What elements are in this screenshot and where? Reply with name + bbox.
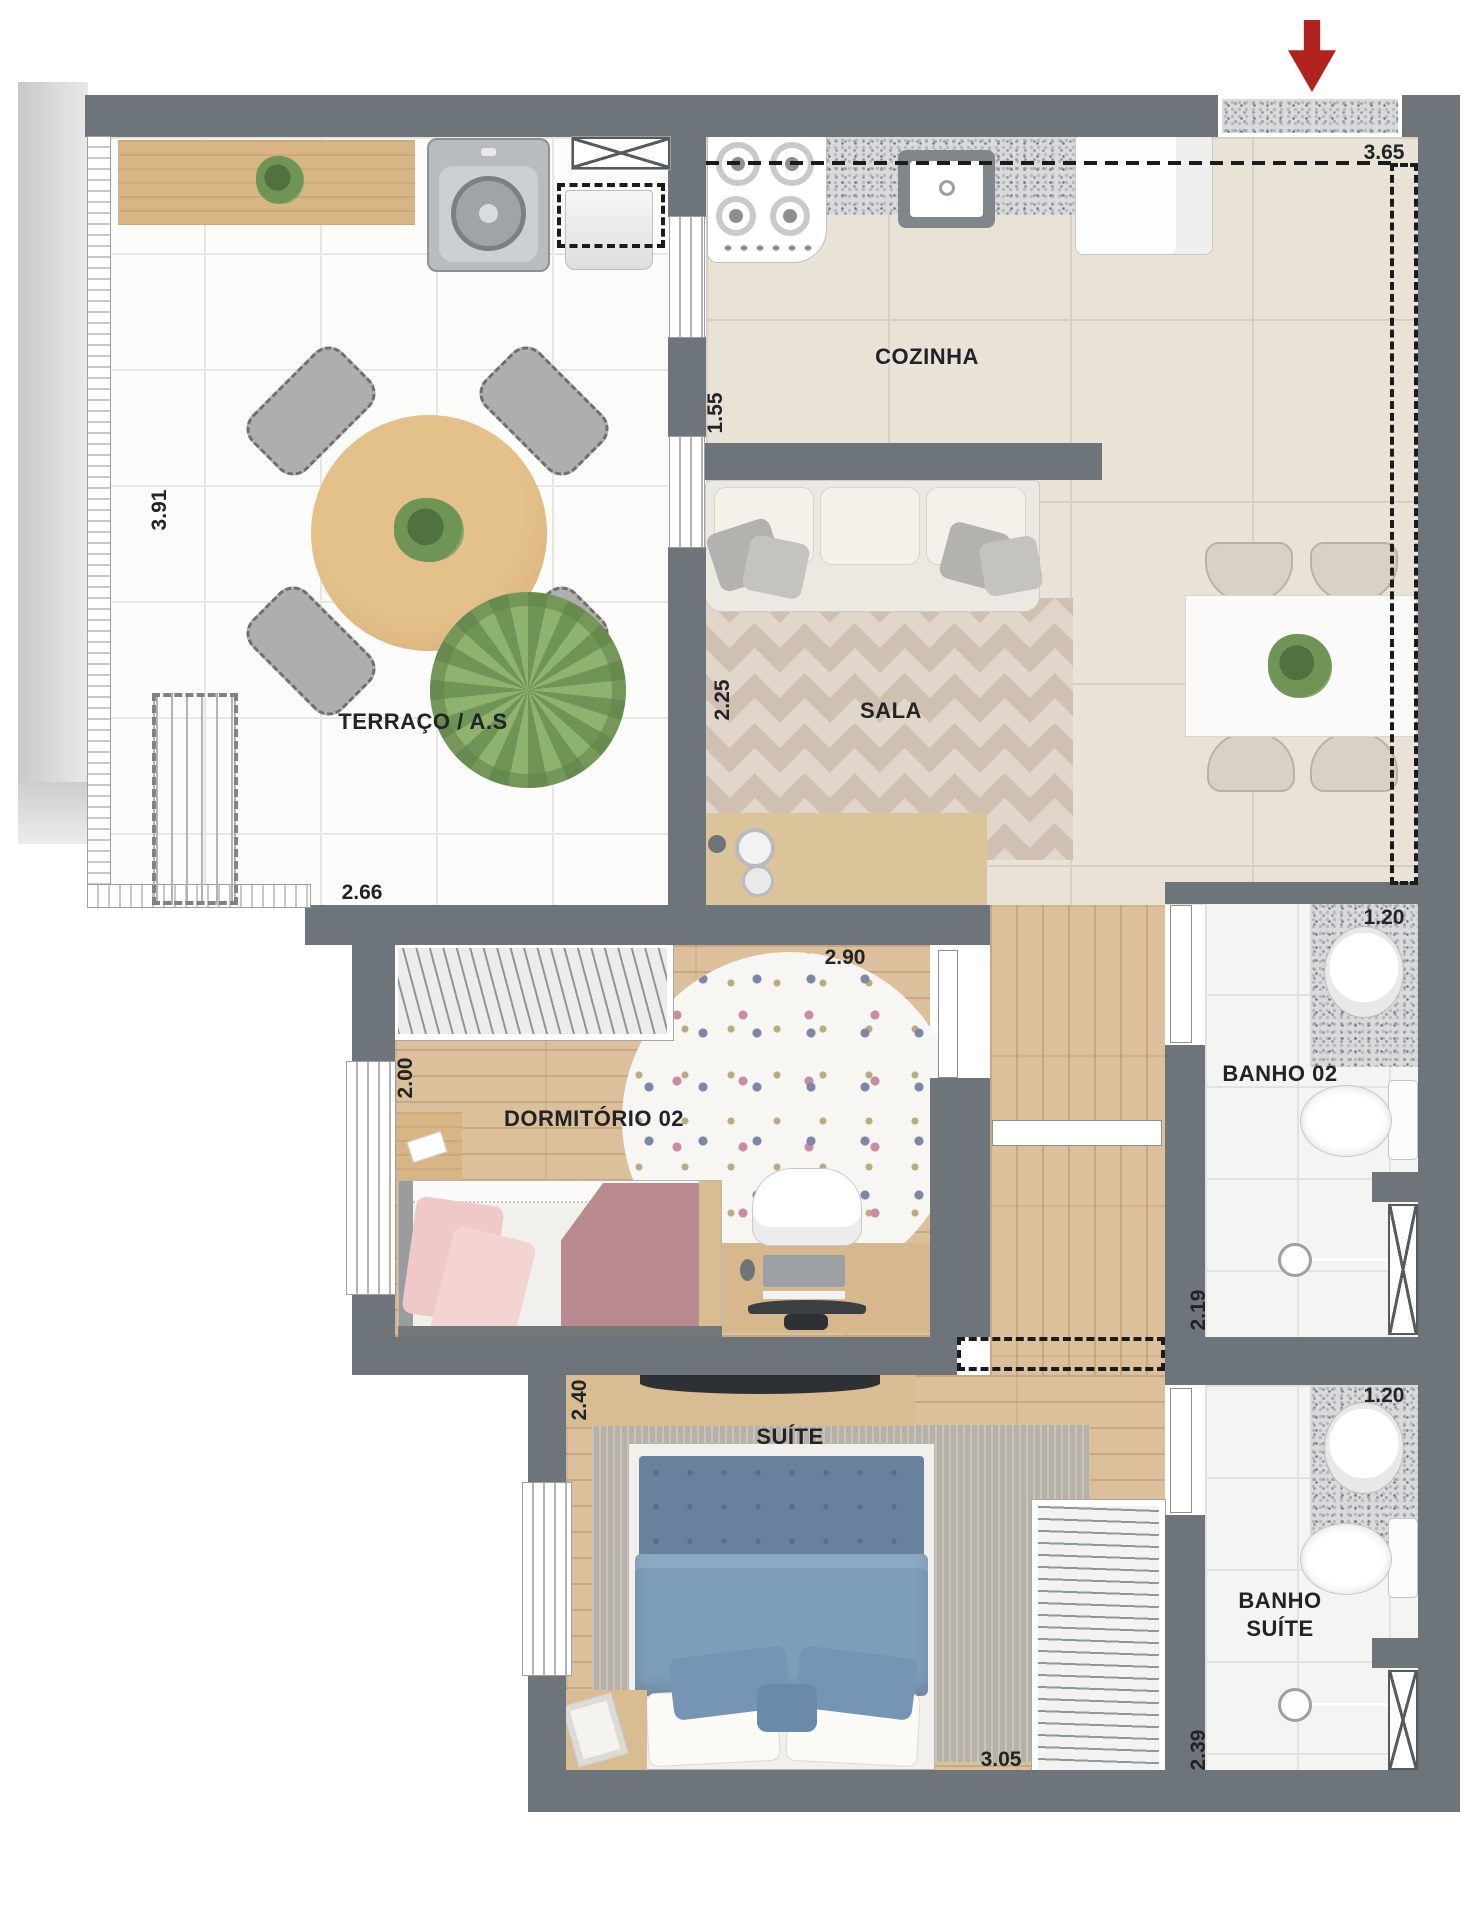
wall-dorm02-suite [352, 1337, 957, 1375]
bath02-toilet-icon [1300, 1085, 1392, 1157]
suite-door [992, 1120, 1162, 1146]
suite-wardrobe [1032, 1500, 1165, 1778]
label-banho-suite-line2: SUÍTE [1246, 1616, 1313, 1642]
bath02-door [1170, 905, 1192, 1043]
bench-plant-icon [256, 156, 304, 204]
bath-suite-shower-arm [1312, 1703, 1388, 1706]
wall-divider-mid [668, 337, 706, 437]
dim-banho-suite-depth: 2.39 [1187, 1730, 1211, 1771]
dim-terraco-depth: 3.91 [148, 490, 172, 531]
bath-suite-toilet-tank [1388, 1518, 1418, 1598]
label-banho02: BANHO 02 [1222, 1061, 1337, 1087]
wall-dorm02-left-lower [352, 1292, 395, 1337]
dorm02-monitor-icon [748, 1300, 866, 1314]
terrace-glass-door-upper [670, 217, 704, 337]
wall-shower02-stub [1372, 1172, 1418, 1202]
building-shadow-left [18, 82, 88, 844]
terrace-glass-door-lower [670, 437, 704, 547]
label-suite: SUÍTE [756, 1424, 823, 1450]
dim-suite-depth: 2.40 [568, 1380, 592, 1421]
bath02-sink-icon [1324, 926, 1404, 1018]
bath02-toilet-tank [1388, 1080, 1418, 1160]
dim-terraco-width: 2.66 [342, 881, 383, 905]
dim-dorm02-depth: 2.00 [394, 1058, 418, 1099]
sideboard [700, 813, 987, 908]
wall-suite-left-upper [528, 1337, 566, 1483]
wall-bottom [528, 1770, 1460, 1812]
suite-window [523, 1483, 571, 1675]
dim-cozinha-opening: 1.55 [704, 393, 728, 434]
terrace-rail-left [88, 137, 110, 905]
label-terraco: TERRAÇO / A.S [338, 709, 507, 735]
entrance-threshold [1218, 95, 1402, 137]
label-banho-suite-line1: BANHO [1238, 1588, 1321, 1614]
duct-projection [1390, 163, 1418, 885]
dorm02-door [938, 950, 958, 1078]
bath-suite-shower-drain-icon [1278, 1688, 1312, 1722]
laundry-tank-projection [557, 183, 665, 248]
bath-suite-sink-icon [1324, 1402, 1404, 1494]
dim-banho02-width: 1.20 [1364, 906, 1405, 930]
dorm02-nightstand [397, 1112, 462, 1180]
floor-plan: 3.65 COZINHA 1.55 3.91 2.25 SALA TERRAÇO… [0, 0, 1477, 1920]
bath-suite-toilet-icon [1300, 1523, 1392, 1595]
wall-dorm02-left-upper [352, 945, 395, 1065]
dorm02-bed-base [398, 1326, 722, 1337]
hall-projection [957, 1337, 1165, 1371]
sofa-back-panel [700, 443, 1102, 480]
dorm02-bed [398, 1180, 722, 1337]
suite-tv-icon [640, 1372, 880, 1394]
wall-bath02-top [1165, 882, 1460, 904]
wall-top [85, 95, 1218, 137]
stove-icon [707, 133, 827, 263]
palm-plant-icon [430, 592, 626, 788]
dim-suite-width: 3.05 [981, 1748, 1022, 1772]
bath-suite-shower-door [1388, 1670, 1418, 1770]
bath02-shower-drain-icon [1278, 1243, 1312, 1277]
refrigerator-icon [1075, 133, 1213, 255]
washing-machine-icon [427, 138, 550, 272]
wall-dorm02-right [930, 1078, 990, 1337]
label-dormitorio02: DORMITÓRIO 02 [504, 1106, 684, 1132]
dorm02-window [347, 1062, 395, 1294]
dim-banho-suite-width: 1.20 [1364, 1384, 1405, 1408]
kitchen-service-window [572, 137, 670, 169]
entrance-arrow-icon [1288, 20, 1336, 92]
cabinet-projection-line [706, 161, 1396, 165]
dim-cozinha-width: 3.65 [1364, 141, 1405, 165]
bath-suite-door [1170, 1388, 1192, 1513]
dining-plant-icon [1268, 634, 1332, 698]
dim-banho02-depth: 2.19 [1187, 1290, 1211, 1331]
wall-right [1418, 137, 1460, 1812]
dorm02-gamepad-icon [784, 1314, 828, 1330]
clothes-rack-projection [152, 693, 238, 905]
wall-divider-bottom [668, 547, 706, 905]
wall-between-baths [1165, 1337, 1460, 1385]
wall-terrace-bedroom [305, 905, 990, 945]
sofa [705, 480, 1040, 612]
label-sala: SALA [860, 698, 922, 724]
bath02-shower-door [1388, 1204, 1418, 1335]
dorm02-desk-chair [752, 1168, 862, 1246]
label-cozinha: COZINHA [875, 344, 979, 370]
bath02-shower-arm [1312, 1258, 1388, 1261]
dim-sala-opening: 2.25 [711, 680, 735, 721]
wall-top-right [1402, 95, 1460, 137]
dorm02-wardrobe [392, 942, 673, 1040]
terrace-table-plant-icon [394, 498, 464, 562]
dim-dorm02-width: 2.90 [825, 946, 866, 970]
wall-shower-suite-stub [1372, 1638, 1418, 1668]
wall-divider-top [668, 137, 706, 217]
suite-bed [628, 1443, 935, 1770]
suite-nightstand [555, 1690, 647, 1770]
